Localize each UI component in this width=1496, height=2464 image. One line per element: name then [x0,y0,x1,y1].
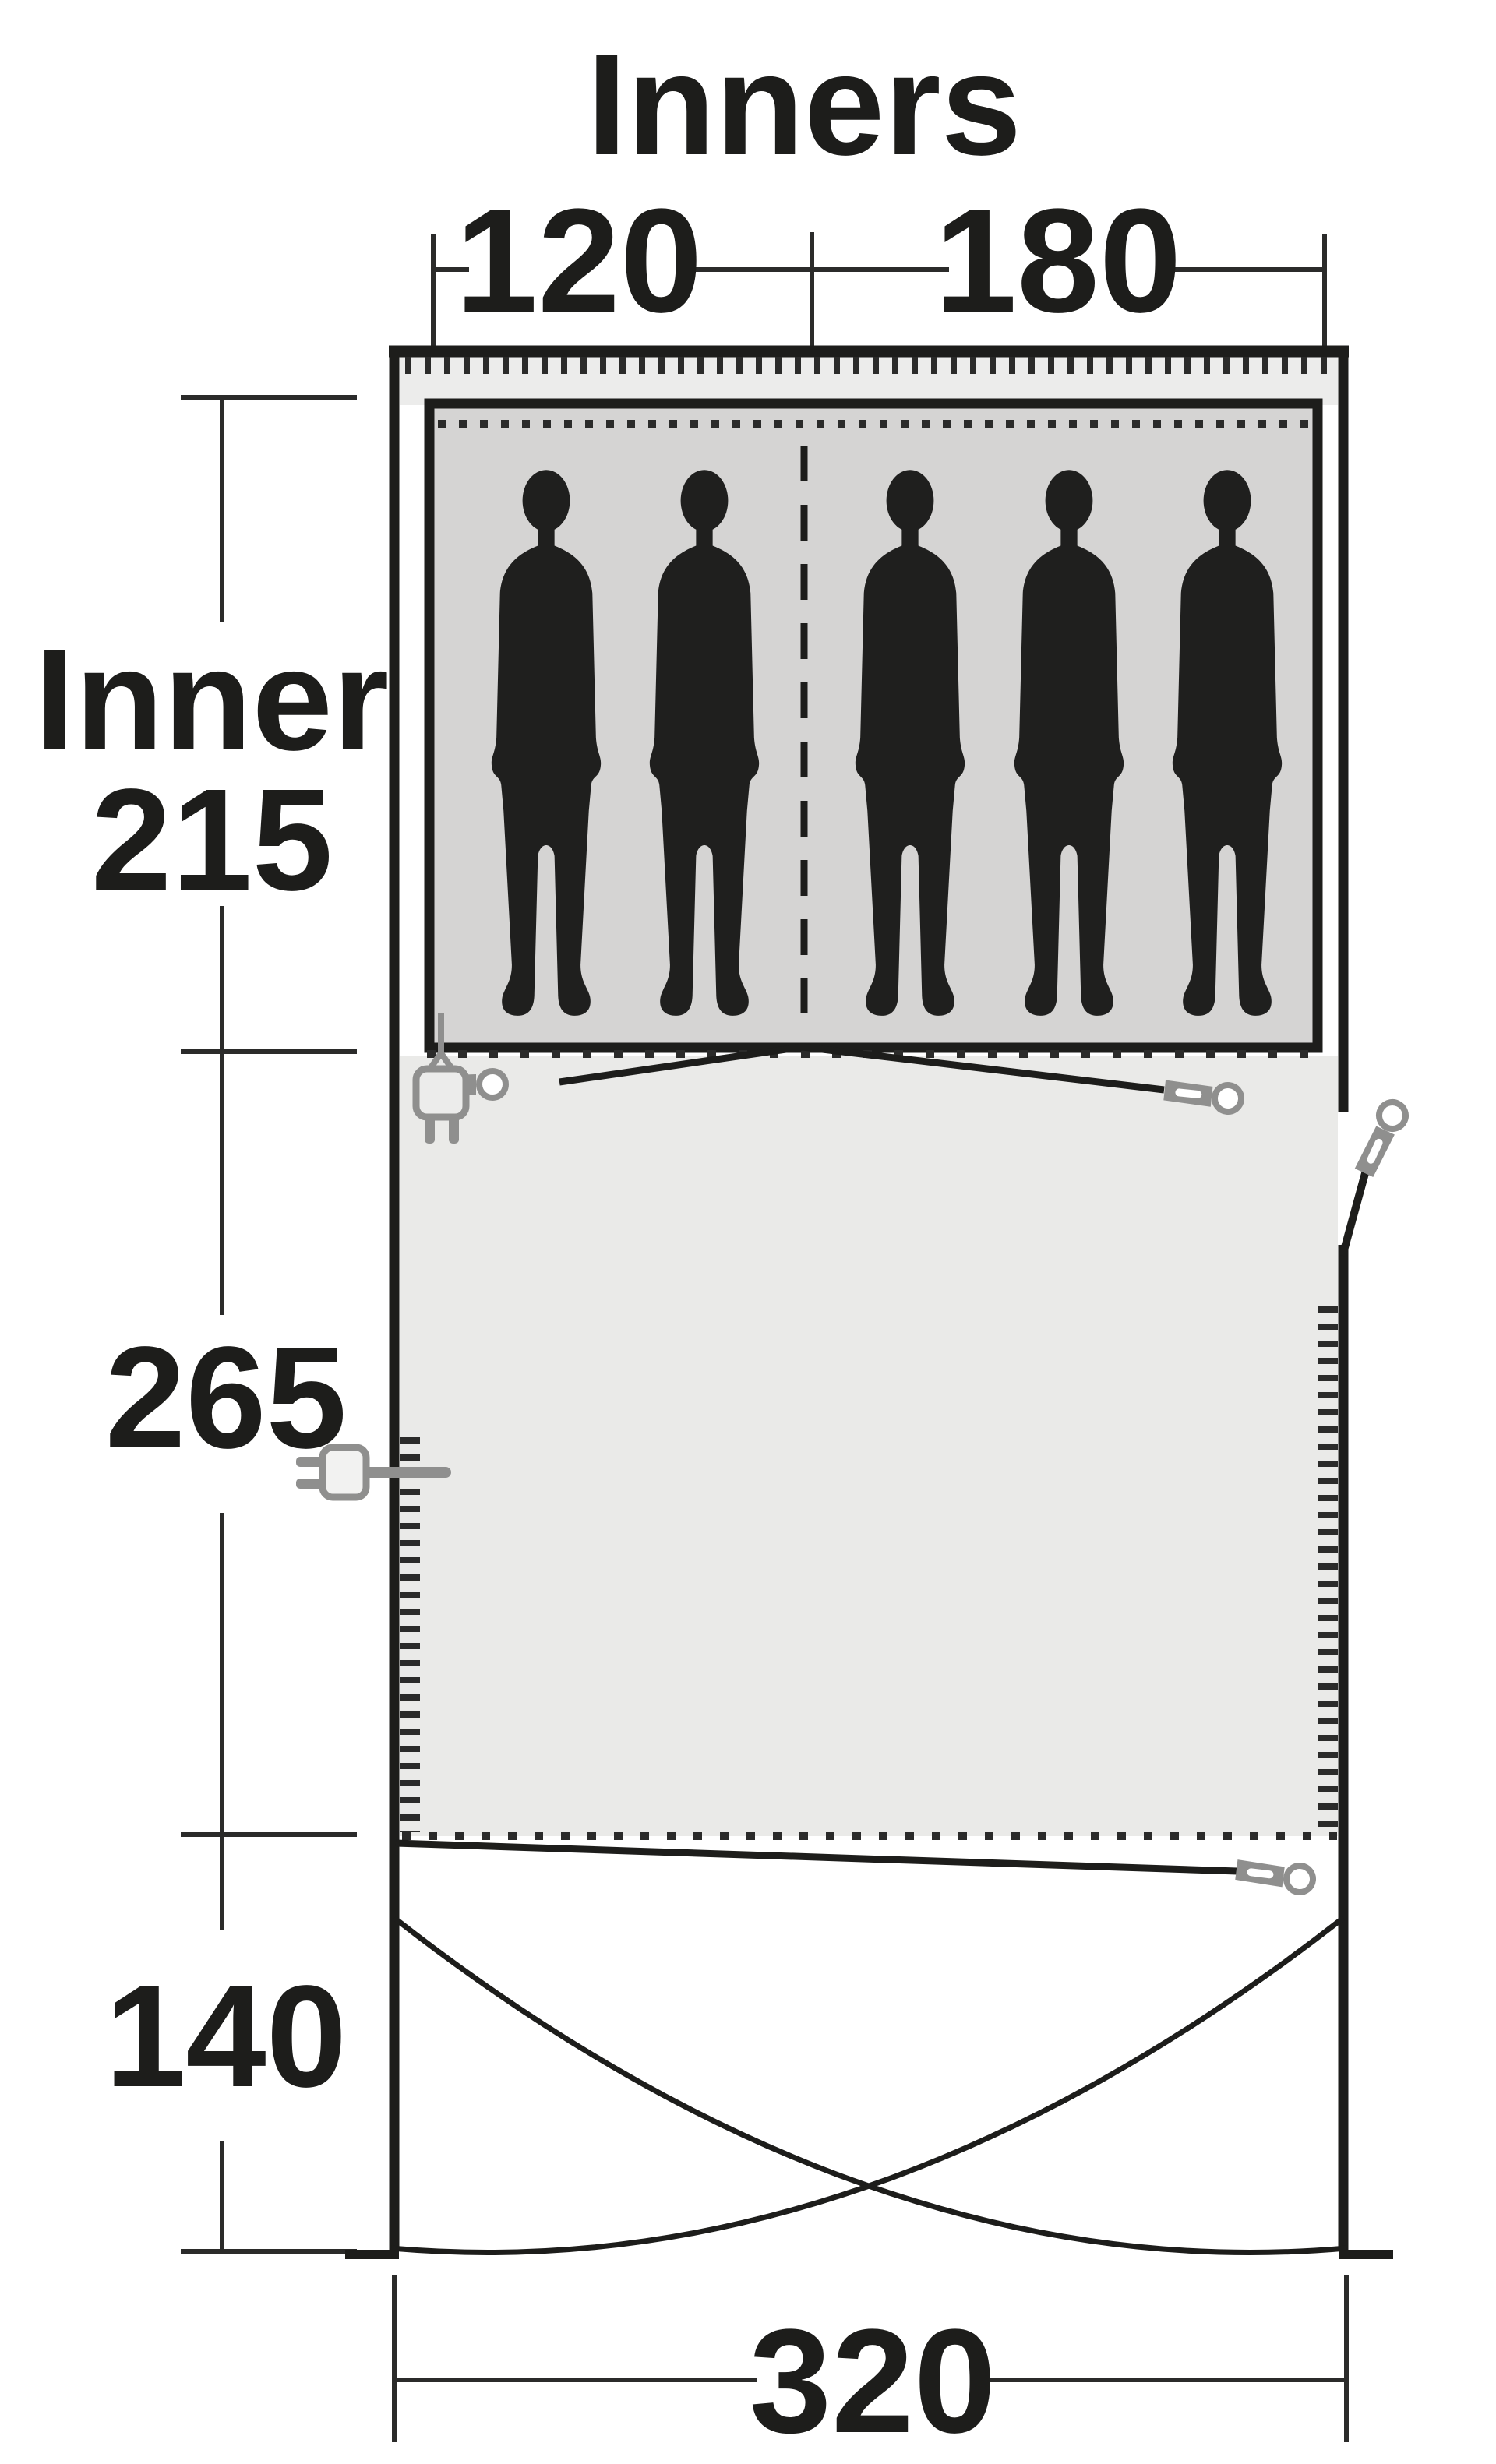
guy-line-bottom [396,1843,1237,1871]
tent-peg-icon [1353,1098,1410,1179]
porch-arc-left [394,1918,1346,2252]
bottom-dimension: 320 [394,2275,1346,2464]
tent-floorplan-svg: Inners 120 180 Inner 215 265 140 [0,0,1496,2464]
dim-inner-word: Inner [35,619,390,781]
top-band [400,357,1338,405]
dim-140-label: 140 [105,1956,347,2117]
dim-120-label: 120 [455,178,702,344]
left-dimension: Inner 215 265 140 [35,397,390,2251]
title-inners: Inners [587,24,1021,185]
living-area [400,1056,1338,1836]
top-dimension: 120 180 [431,178,1327,368]
tent-peg-icon [1235,1858,1314,1894]
dim-320-label: 320 [749,2299,996,2464]
tent-floorplan: Inners 120 180 Inner 215 265 140 [0,0,1496,2464]
porch-arc-right [391,1918,1343,2252]
dim-180-label: 180 [934,178,1181,344]
dim-215-label: 215 [91,760,333,921]
dim-265-label: 265 [105,1317,347,1479]
guy-line-right-door [1343,1159,1369,1256]
